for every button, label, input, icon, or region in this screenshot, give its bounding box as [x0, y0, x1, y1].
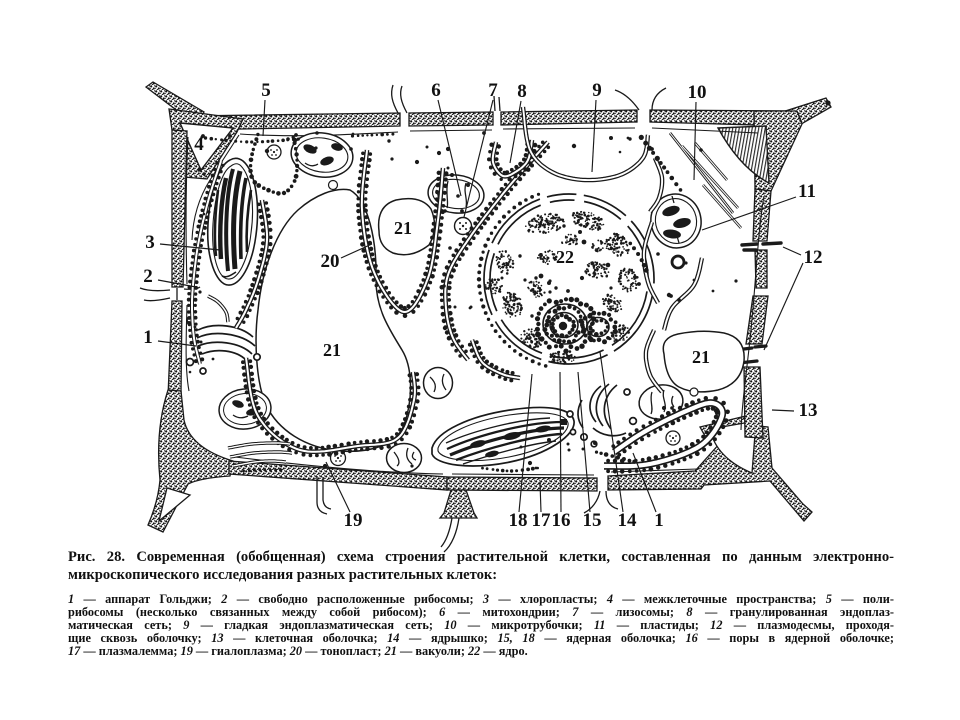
svg-text:21: 21 [323, 340, 341, 360]
svg-text:16: 16 [552, 510, 571, 531]
svg-text:3: 3 [145, 232, 155, 253]
svg-text:9: 9 [592, 80, 602, 101]
svg-text:11: 11 [798, 181, 816, 202]
svg-text:1: 1 [143, 327, 153, 348]
svg-text:21: 21 [692, 347, 710, 367]
svg-text:7: 7 [488, 80, 498, 101]
svg-text:14: 14 [618, 510, 638, 531]
svg-text:15: 15 [583, 510, 602, 531]
svg-text:10: 10 [688, 82, 707, 103]
svg-text:21: 21 [394, 218, 412, 238]
svg-text:18: 18 [509, 510, 528, 531]
svg-text:12: 12 [804, 247, 823, 268]
svg-text:1: 1 [654, 510, 664, 531]
svg-text:13: 13 [799, 400, 818, 421]
svg-text:20: 20 [321, 251, 340, 272]
svg-text:22: 22 [556, 247, 574, 267]
svg-text:17: 17 [532, 510, 552, 531]
svg-text:5: 5 [261, 80, 271, 101]
svg-text:4: 4 [194, 134, 204, 155]
svg-text:19: 19 [344, 510, 363, 531]
svg-text:8: 8 [517, 81, 527, 102]
svg-text:2: 2 [143, 266, 153, 287]
svg-text:6: 6 [431, 80, 441, 101]
